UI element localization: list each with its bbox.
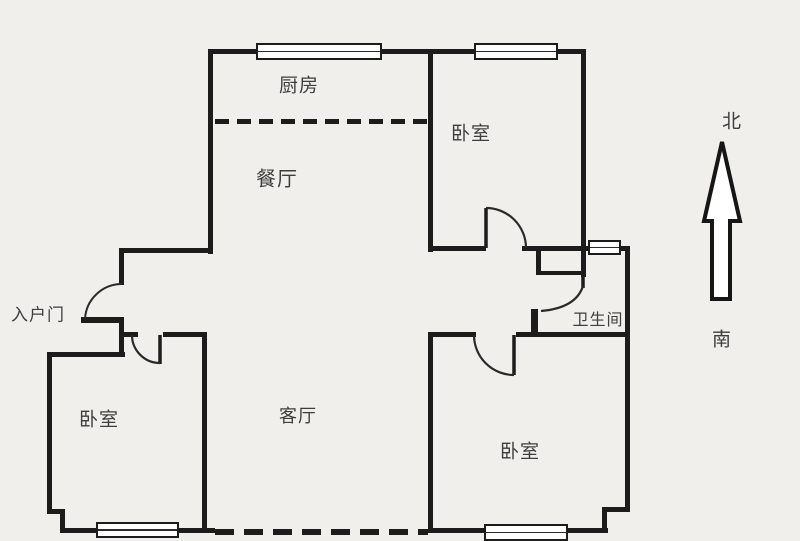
room-label-bedroom-bottom-right: 卧室 bbox=[500, 437, 540, 464]
window-bathroom bbox=[588, 240, 621, 255]
room-label-bedroom-top-right: 卧室 bbox=[451, 119, 491, 146]
bedroom-br-door-arc bbox=[474, 335, 514, 375]
window-bedroom-bl bbox=[96, 522, 179, 538]
room-label-kitchen: 厨房 bbox=[279, 71, 319, 98]
window-mullion bbox=[476, 51, 556, 53]
compass-south-label: 南 bbox=[712, 325, 732, 352]
window-kitchen bbox=[256, 43, 382, 60]
window-bedroom-tr bbox=[474, 43, 558, 60]
window-mullion bbox=[98, 529, 177, 531]
bedroom-tr-door-arc bbox=[486, 208, 526, 248]
window-mullion bbox=[258, 51, 380, 53]
entrance-door-arc bbox=[85, 284, 122, 319]
room-label-living: 客厅 bbox=[279, 402, 317, 428]
window-mullion bbox=[486, 532, 566, 534]
floor-plan: 厨房 卧室 餐厅 入户门 卫生间 卧室 客厅 卧室 北 南 bbox=[0, 0, 800, 541]
window-mullion bbox=[590, 247, 619, 249]
doors-and-compass-layer bbox=[0, 0, 800, 541]
bedroom-bl-door-arc bbox=[132, 335, 160, 363]
window-bedroom-br bbox=[484, 524, 568, 541]
compass-north-label: 北 bbox=[722, 107, 742, 134]
room-label-dining: 餐厅 bbox=[256, 163, 298, 192]
entrance-label: 入户门 bbox=[11, 301, 65, 326]
north-arrow-icon bbox=[704, 142, 740, 299]
room-label-bedroom-bottom-left: 卧室 bbox=[79, 405, 119, 432]
room-label-bathroom: 卫生间 bbox=[572, 306, 623, 330]
